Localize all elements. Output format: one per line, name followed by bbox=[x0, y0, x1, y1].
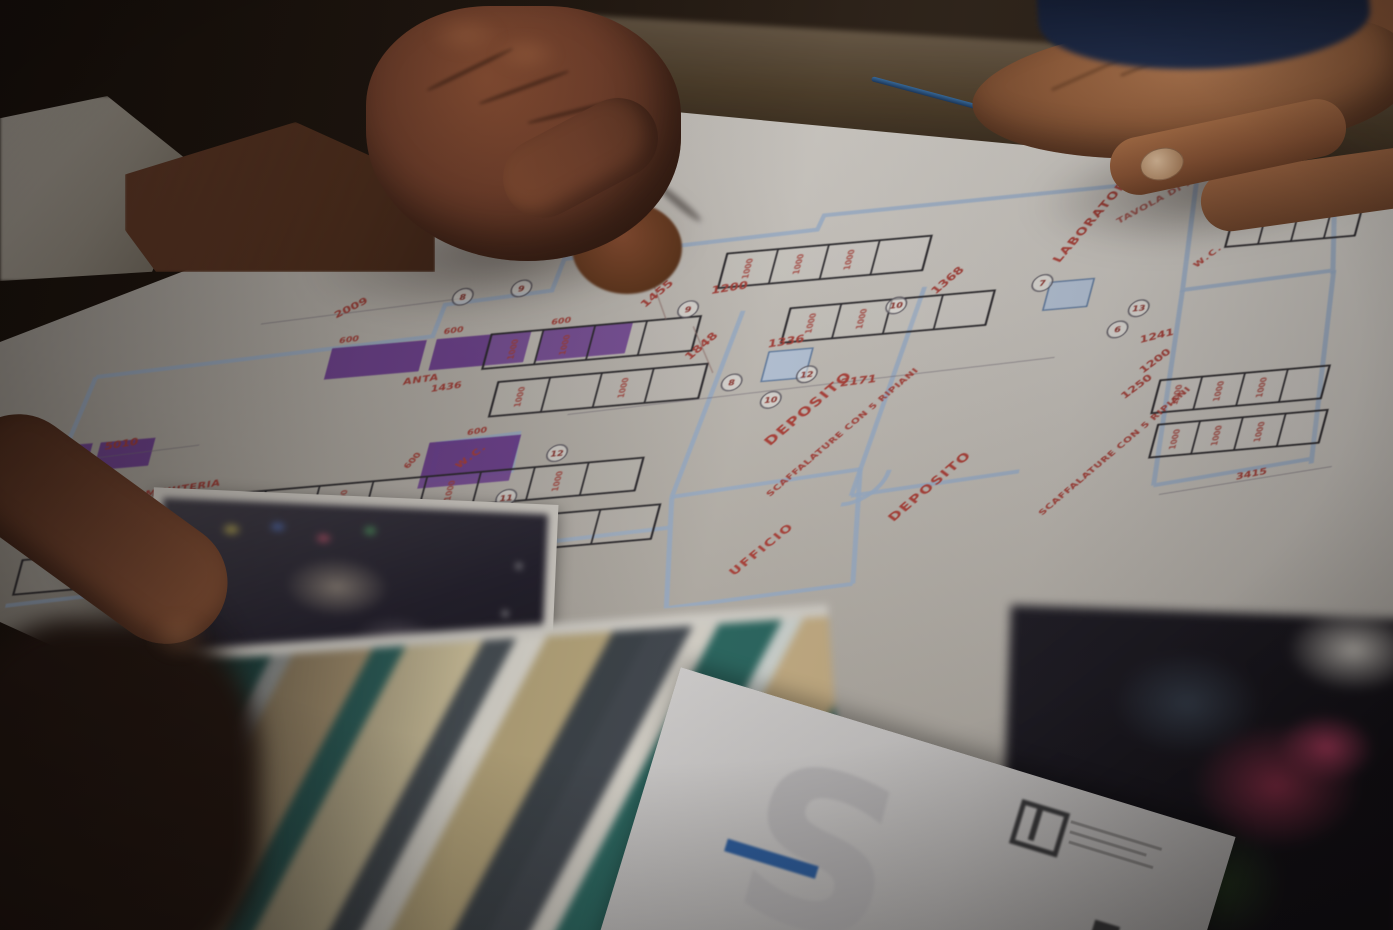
dim-2009: 2009 bbox=[333, 295, 370, 321]
room-label-ufficio: UFFICIO bbox=[727, 521, 798, 578]
hand-mass-dark bbox=[0, 618, 260, 930]
dim-1200: 1200 bbox=[710, 279, 749, 297]
room-label-wc2: W.C. bbox=[1192, 243, 1225, 269]
marker: 10 bbox=[763, 396, 779, 406]
dim-600: 600 bbox=[443, 326, 465, 337]
dim-1368: 1368 bbox=[928, 264, 967, 296]
fingertip-highlight bbox=[148, 612, 210, 660]
marker: 13 bbox=[1131, 304, 1147, 314]
room-label-deposito2: DEPOSITO bbox=[885, 449, 975, 524]
dim-1241: 1241 bbox=[1140, 326, 1174, 346]
watermark-letter: S bbox=[717, 730, 922, 930]
stamp-mark bbox=[1089, 920, 1120, 930]
knuckle-highlight bbox=[492, 34, 560, 74]
dim-600: 600 bbox=[402, 452, 424, 471]
dim-600: 600 bbox=[550, 316, 572, 327]
photo-scene: 1000 1000 1000 1000 1000 1000 1000 1000 … bbox=[0, 0, 1393, 930]
marker: 10 bbox=[888, 302, 904, 312]
dim-1200b: 1200 bbox=[1137, 346, 1174, 375]
marker: 12 bbox=[799, 370, 815, 380]
company-logo-icon bbox=[1009, 799, 1070, 858]
dim-1336: 1336 bbox=[767, 332, 806, 350]
dim-1250: 1250 bbox=[1118, 372, 1155, 401]
marker: 12 bbox=[549, 449, 565, 459]
